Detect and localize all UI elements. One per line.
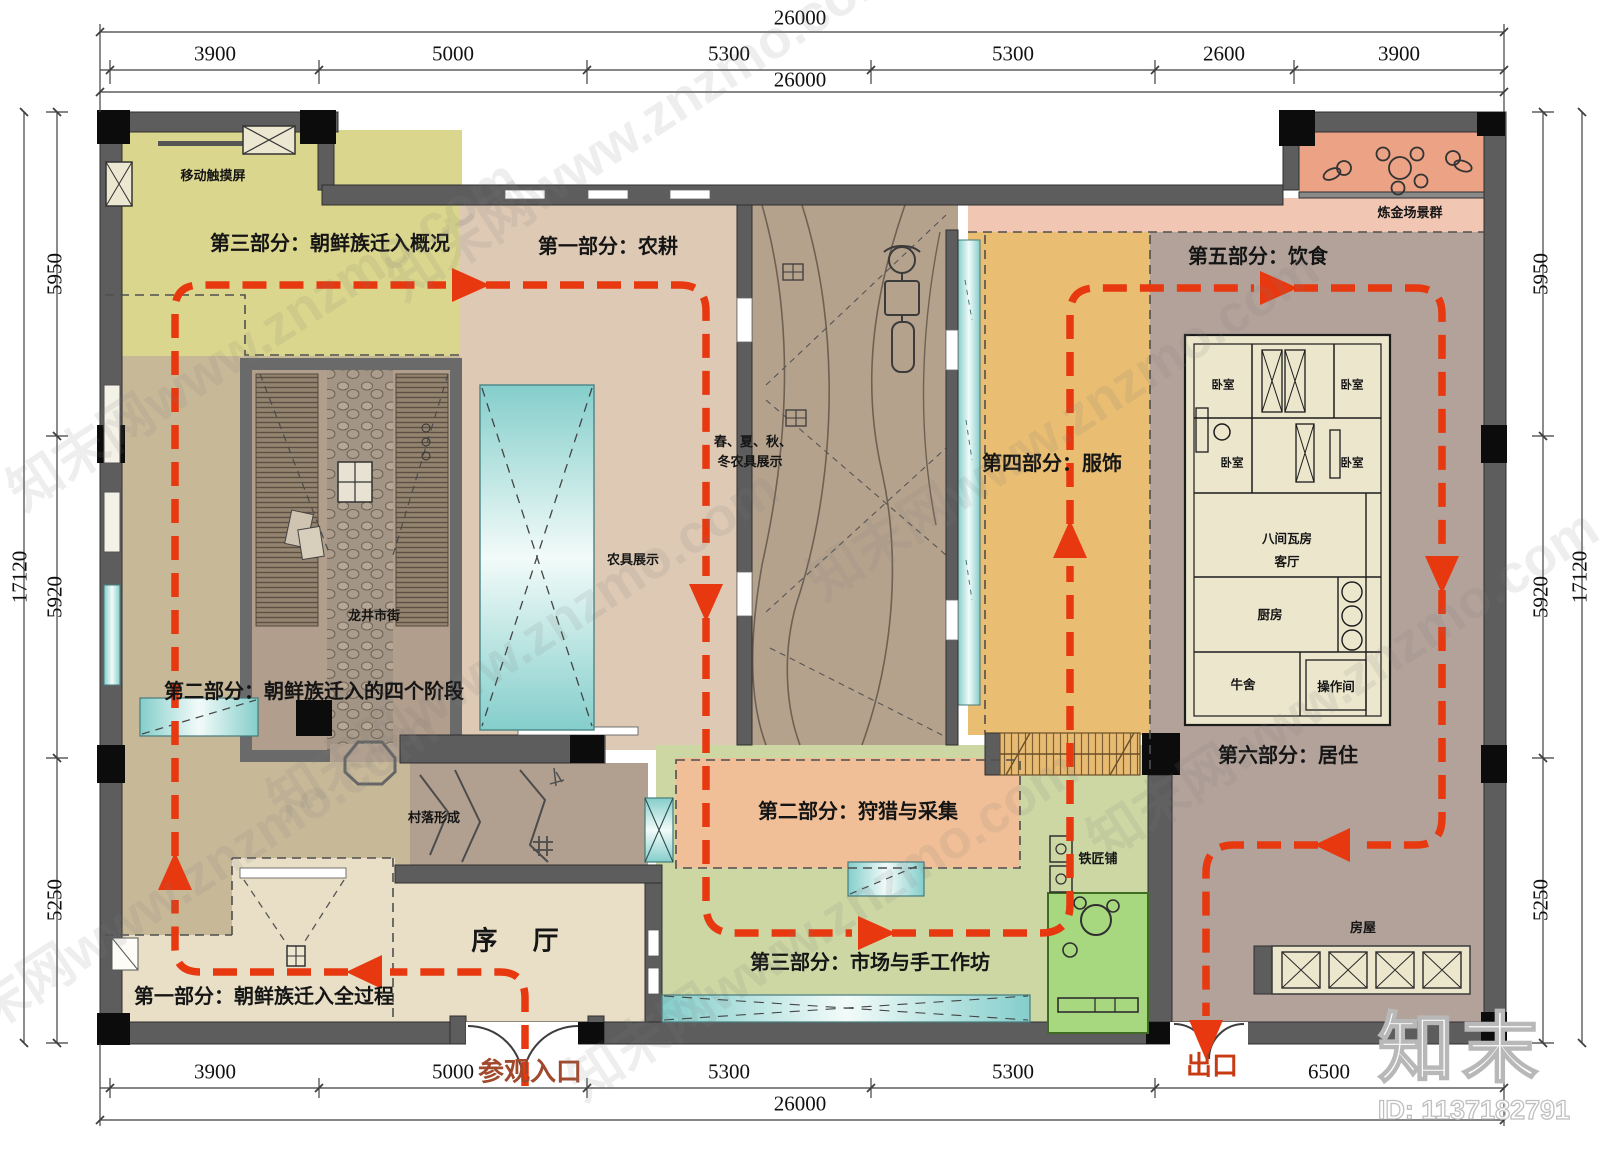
room-label-house: 房屋 xyxy=(1350,921,1376,935)
room-label-eight-room-house: 八间瓦房 xyxy=(1262,533,1312,547)
room-label-cowshed: 牛舍 xyxy=(1230,679,1255,693)
dim-top-seg-0: 3900 xyxy=(194,42,236,65)
dim-left-seg-0: 5950 xyxy=(43,253,66,295)
zone-label-part1-farming: 第一部分：农耕 xyxy=(538,236,678,258)
house-display-band xyxy=(1272,946,1470,994)
dim-top-total: 26000 xyxy=(774,6,827,29)
dim-bottom-seg-4: 6500 xyxy=(1308,1060,1350,1083)
dim-left-seg-1: 5920 xyxy=(43,576,66,618)
room-label-longjing-street: 龙井市街 xyxy=(348,609,400,623)
zone-label-part2-stages: 第二部分：朝鲜族迁入的四个阶段 xyxy=(164,681,464,703)
room-label-bedroom-3: 卧室 xyxy=(1221,458,1244,471)
house-inset xyxy=(1185,335,1390,725)
dim-top-seg-3: 5300 xyxy=(992,42,1034,65)
zone-label-part2-hunting: 第二部分：狩猎与采集 xyxy=(758,801,958,823)
dim-bottom-seg-1: 5000 xyxy=(432,1060,474,1083)
entrance-label: 参观入口 xyxy=(478,1058,582,1087)
room-label-workroom: 操作间 xyxy=(1317,681,1355,695)
zone-label-part6-living: 第六部分：居住 xyxy=(1218,745,1358,767)
room-label-living-room: 客厅 xyxy=(1274,556,1299,570)
room-label-touch-screen: 移动触摸屏 xyxy=(180,169,245,183)
dim-right-seg-0: 5950 xyxy=(1529,253,1552,295)
room-label-bedroom-1: 卧室 xyxy=(1212,380,1235,393)
dim-right-seg-1: 5920 xyxy=(1529,576,1552,618)
dim-bottom-total: 26000 xyxy=(774,1092,827,1115)
dim-top-total-inner: 26000 xyxy=(774,68,827,91)
longjing-street-room xyxy=(240,358,462,784)
zone-label-lobby: 序 厅 xyxy=(471,927,572,956)
dim-bottom-seg-0: 3900 xyxy=(194,1060,236,1083)
dim-top-seg-2: 5300 xyxy=(708,42,750,65)
zone-label-part3-market: 第三部分：市场与手工作坊 xyxy=(750,952,990,974)
room-label-seasonal-tools-line1: 春、夏、秋、 xyxy=(714,435,792,449)
dim-bottom-seg-3: 5300 xyxy=(992,1060,1034,1083)
room-label-bedroom-2: 卧室 xyxy=(1341,380,1364,393)
dim-top-seg-1: 5000 xyxy=(432,42,474,65)
dim-right-total: 17120 xyxy=(1568,551,1591,604)
exit-label: 出口 xyxy=(1186,1052,1238,1081)
room-label-farm-tools: 农具展示 xyxy=(607,553,659,567)
zone-label-part1-process: 第一部分：朝鲜族迁入全过程 xyxy=(134,986,394,1008)
watermark-logo: 知末 xyxy=(1378,1008,1546,1092)
zone-label-part4-clothing: 第四部分：服饰 xyxy=(982,453,1122,475)
room-label-kitchen: 厨房 xyxy=(1257,609,1282,623)
room-label-blacksmith: 铁匠铺 xyxy=(1078,852,1117,866)
dim-top-seg-4: 2600 xyxy=(1203,42,1245,65)
room-label-seasonal-tools-line2: 冬农具展示 xyxy=(717,455,782,469)
watermark-id: ID: 1137182791 xyxy=(1378,1096,1570,1126)
room-label-smelting: 炼金场景群 xyxy=(1377,206,1442,220)
dim-left-seg-2: 5250 xyxy=(43,879,66,921)
room-label-village-formation: 村落形成 xyxy=(408,811,460,825)
dim-bottom-seg-2: 5300 xyxy=(708,1060,750,1083)
zone-label-part3-overview: 第三部分：朝鲜族迁入概况 xyxy=(210,233,450,255)
dim-left-total: 17120 xyxy=(8,551,31,604)
room-label-bedroom-4: 卧室 xyxy=(1341,458,1364,471)
dim-top-seg-5: 3900 xyxy=(1378,42,1420,65)
floor-plan-page: 26000 3900 5000 5300 5300 2600 3900 2600… xyxy=(0,0,1600,1154)
dim-right-seg-2: 5250 xyxy=(1529,879,1552,921)
zone-label-part5-food: 第五部分：饮食 xyxy=(1188,246,1328,268)
